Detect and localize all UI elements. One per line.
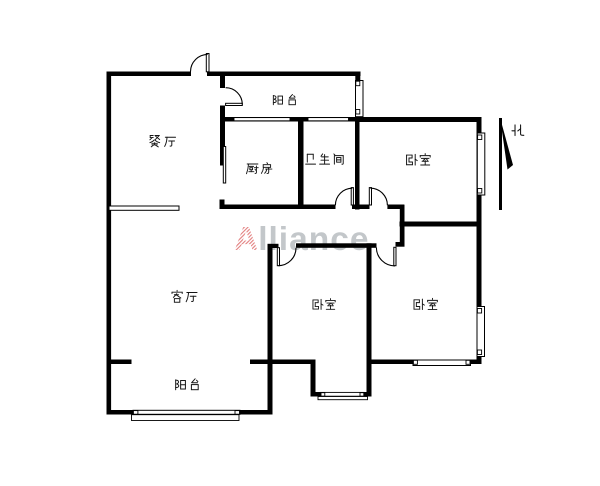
- svg-text:A: A: [234, 221, 259, 258]
- svg-text:lliance: lliance: [258, 221, 369, 258]
